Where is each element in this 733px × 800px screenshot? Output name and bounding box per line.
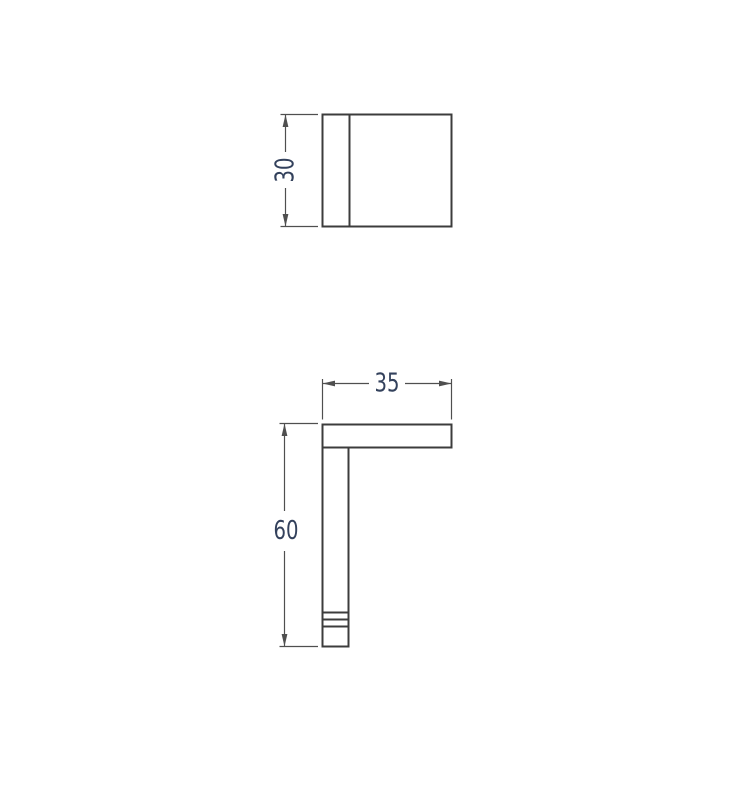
dimension-label-30: 30 <box>271 158 301 183</box>
dimension-label-60: 60 <box>274 516 299 546</box>
dimension-label-35: 35 <box>375 369 400 399</box>
drawing-page: 30 35 <box>0 0 733 800</box>
front-view-leg-outline <box>323 448 349 647</box>
arrowhead-right-icon <box>439 381 452 387</box>
arrowhead-left-icon <box>323 381 336 387</box>
top-view <box>323 115 452 227</box>
dimension-60: 60 <box>274 424 319 647</box>
arrowhead-down-icon <box>283 214 289 227</box>
dimension-30: 30 <box>271 115 319 227</box>
dimension-35: 35 <box>323 369 452 420</box>
technical-drawing: 30 35 <box>0 0 733 800</box>
arrowhead-down-icon <box>282 634 288 647</box>
top-view-outline <box>323 115 452 227</box>
arrowhead-up-icon <box>283 115 289 128</box>
arrowhead-up-icon <box>282 424 288 437</box>
front-view <box>323 425 452 647</box>
front-view-arm-outline <box>323 425 452 448</box>
